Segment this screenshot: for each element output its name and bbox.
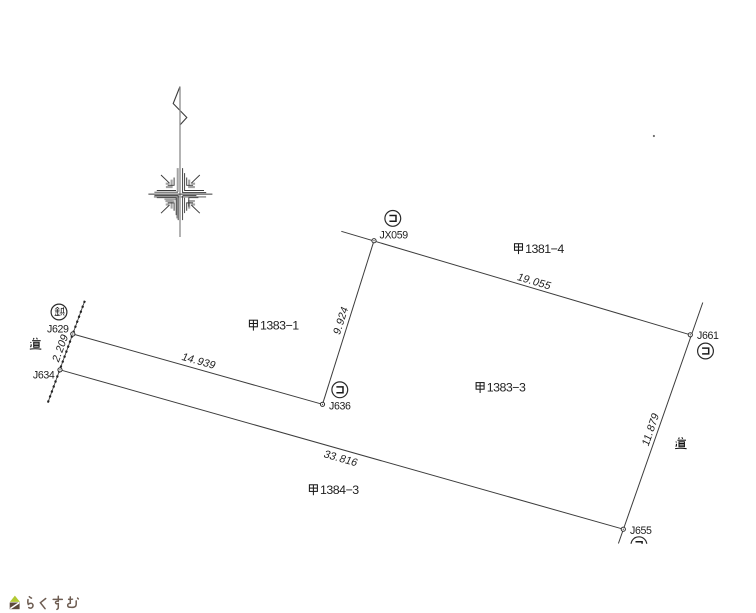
svg-text:14.939: 14.939 (179, 351, 217, 371)
svg-text:J629: J629 (47, 323, 69, 335)
svg-text:1381−4: 1381−4 (525, 242, 564, 256)
svg-text:J655: J655 (630, 525, 652, 537)
svg-text:19.055: 19.055 (515, 272, 553, 293)
svg-text:J636: J636 (329, 400, 351, 412)
svg-text:J634: J634 (33, 370, 55, 382)
svg-text:1384−3: 1384−3 (320, 483, 359, 497)
svg-text:1383−1: 1383−1 (260, 318, 299, 332)
svg-text:J661: J661 (697, 330, 719, 342)
svg-text:9.924: 9.924 (332, 305, 351, 337)
svg-text:JX059: JX059 (380, 229, 409, 241)
svg-text:1383−3: 1383−3 (487, 381, 526, 395)
svg-text:33.816: 33.816 (322, 449, 360, 469)
